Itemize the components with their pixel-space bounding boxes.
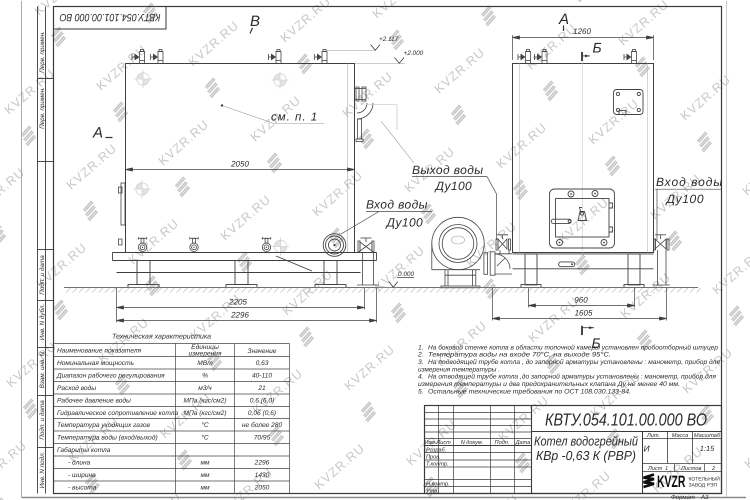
svg-text:+2.000: +2.000 xyxy=(404,50,424,57)
svg-text:+2.117: +2.117 xyxy=(379,36,399,43)
svg-text:N докум.: N докум. xyxy=(461,439,484,446)
svg-text:измерения температуры и два пр: измерения температуры и два предохраните… xyxy=(418,381,680,388)
svg-text:0,6 (6,0): 0,6 (6,0) xyxy=(250,398,275,405)
svg-text:0,63: 0,63 xyxy=(256,360,269,367)
svg-text:Вход воды: Вход воды xyxy=(656,175,723,189)
svg-text:Диапазон рабочего регулировани: Диапазон рабочего регулирования xyxy=(56,373,165,380)
svg-text:Номинальная мощность: Номинальная мощность xyxy=(57,360,135,367)
svg-text:Температура воды (вход/выход): Температура воды (вход/выход) xyxy=(57,435,158,442)
svg-text:- длина: - длина xyxy=(68,460,91,467)
svg-text:5.: 5. xyxy=(418,388,424,395)
svg-text:Разраб.: Разраб. xyxy=(426,446,446,453)
svg-text:2050: 2050 xyxy=(254,485,270,492)
svg-text:%: % xyxy=(202,373,208,380)
svg-text:Изм.Лист: Изм.Лист xyxy=(425,440,452,446)
svg-text:Гидравлическое сопротивление к: Гидравлическое сопротивление котла xyxy=(57,410,178,417)
svg-text:0,06 (0,6): 0,06 (0,6) xyxy=(248,410,276,417)
svg-text:МПа (кгс/см2): МПа (кгс/см2) xyxy=(183,398,226,405)
svg-text:- высота: - высота xyxy=(68,485,97,492)
svg-text:Значение: Значение xyxy=(248,348,277,355)
svg-text:Дата: Дата xyxy=(515,440,531,446)
svg-text:2296: 2296 xyxy=(230,311,249,320)
svg-text:измерения: измерения xyxy=(189,350,222,357)
svg-text:И: И xyxy=(643,444,650,454)
svg-text:4.: 4. xyxy=(418,374,424,381)
svg-text:1.: 1. xyxy=(418,344,424,351)
svg-text:Пров.: Пров. xyxy=(426,455,441,461)
svg-text:21: 21 xyxy=(257,385,266,392)
svg-text:Габариты котла: Габариты котла xyxy=(57,447,111,454)
svg-text:Лист: Лист xyxy=(647,466,663,472)
svg-text:Вход воды: Вход воды xyxy=(366,198,428,212)
svg-text:2050: 2050 xyxy=(230,160,249,169)
svg-text:КВр -0,63 К (РВР): КВр -0,63 К (РВР) xyxy=(536,448,636,463)
svg-text:не более 280: не более 280 xyxy=(242,422,283,429)
svg-text:2.: 2. xyxy=(417,352,424,359)
svg-text:Остальные технические требован: Остальные технические требования по ОСТ … xyxy=(428,388,631,395)
svg-text:А: А xyxy=(558,11,569,28)
svg-text:3.: 3. xyxy=(418,359,424,366)
svg-text:Б: Б xyxy=(593,40,602,56)
svg-text:Рабочее давление воды: Рабочее давление воды xyxy=(57,398,131,405)
svg-text:А3: А3 xyxy=(700,494,709,500)
svg-text:мм: мм xyxy=(200,485,210,492)
svg-text:Инв. N подл.: Инв. N подл. xyxy=(39,452,46,489)
svg-text:КВТУ.054.101.00.000 ВО: КВТУ.054.101.00.000 ВО xyxy=(545,410,707,430)
svg-text:40-110: 40-110 xyxy=(252,373,272,380)
svg-text:1430: 1430 xyxy=(255,472,270,479)
svg-text:Техническая характеристика: Техническая характеристика xyxy=(112,334,211,341)
svg-text:1: 1 xyxy=(665,466,668,472)
svg-text:70/95: 70/95 xyxy=(254,435,271,442)
svg-text:Расход воды: Расход воды xyxy=(57,385,96,392)
svg-text:Котел водогрейный: Котел водогрейный xyxy=(534,434,638,449)
svg-text:Т.контр.: Т.контр. xyxy=(426,462,449,468)
svg-text:Инв. N дубл.: Инв. N дубл. xyxy=(39,304,46,340)
svg-text:- ширина: - ширина xyxy=(68,472,96,479)
svg-text:КВТУ.054.101.00.000 ВО: КВТУ.054.101.00.000 ВО xyxy=(60,11,161,23)
svg-text:Н.контр.: Н.контр. xyxy=(426,481,450,487)
svg-text:1260: 1260 xyxy=(573,27,591,36)
svg-text:Температура уходящих газов: Температура уходящих газов xyxy=(57,422,150,429)
svg-text:KVZR: KVZR xyxy=(657,473,686,491)
svg-text:1:15: 1:15 xyxy=(700,444,715,453)
svg-text:Масштаб: Масштаб xyxy=(694,432,721,439)
svg-text:0.000: 0.000 xyxy=(398,271,414,278)
svg-text:1605: 1605 xyxy=(575,309,593,318)
svg-text:Взам. инв. N: Взам. инв. N xyxy=(39,351,46,388)
svg-text:°С: °С xyxy=(201,435,209,442)
svg-text:2296: 2296 xyxy=(254,460,270,467)
svg-text:А: А xyxy=(92,125,103,142)
svg-text:°С: °С xyxy=(201,422,209,429)
svg-text:Выход воды: Выход воды xyxy=(412,163,483,177)
svg-text:Перв. примен.: Перв. примен. xyxy=(39,31,46,73)
svg-text:МПа (кгс/см2): МПа (кгс/см2) xyxy=(183,410,226,417)
svg-text:Утв.: Утв. xyxy=(425,489,439,495)
svg-text:Ду100: Ду100 xyxy=(434,179,473,193)
svg-text:измерения температуры .: измерения температуры . xyxy=(418,366,500,373)
svg-text:В: В xyxy=(250,13,260,30)
svg-text:Подп. и дата: Подп. и дата xyxy=(39,255,46,295)
svg-text:2205: 2205 xyxy=(228,298,247,307)
svg-text:На отводящей трубе котла ,до з: На отводящей трубе котла ,до запорной ар… xyxy=(428,374,716,381)
svg-text:МВт: МВт xyxy=(197,360,213,367)
svg-text:На боковой стенке котла в обла: На боковой стенке котла в области топочн… xyxy=(428,344,718,351)
svg-text:Ду100: Ду100 xyxy=(665,192,705,206)
svg-text:см. п. 1: см. п. 1 xyxy=(271,112,318,124)
svg-text:Перв. примен.: Перв. примен. xyxy=(39,87,46,129)
svg-text:Подп.: Подп. xyxy=(495,439,510,446)
svg-text:Масса: Масса xyxy=(672,433,689,439)
svg-text:Ду100: Ду100 xyxy=(385,216,424,230)
svg-text:КОТЕЛЬНЫЙ: КОТЕЛЬНЫЙ xyxy=(689,476,721,483)
svg-text:Лит.: Лит. xyxy=(646,433,660,439)
svg-text:Формат: Формат xyxy=(671,494,695,500)
svg-text:Температура воды на входе 70°: Температура воды на входе 70°С, на выход… xyxy=(428,352,611,359)
svg-text:960: 960 xyxy=(574,296,588,305)
svg-text:ЗАВОД РЭП: ЗАВОД РЭП xyxy=(689,483,718,489)
svg-text:мм: мм xyxy=(200,472,210,479)
svg-text:Подп. и дата: Подп. и дата xyxy=(39,400,46,440)
svg-text:На подводящей трубе котла , до: На подводящей трубе котла , до запорной … xyxy=(428,359,720,366)
svg-text:Наименование показателя: Наименование показателя xyxy=(57,347,142,354)
svg-text:Листов: Листов xyxy=(680,466,701,472)
svg-text:мм: мм xyxy=(200,460,210,467)
svg-text:м3/ч: м3/ч xyxy=(198,385,212,392)
